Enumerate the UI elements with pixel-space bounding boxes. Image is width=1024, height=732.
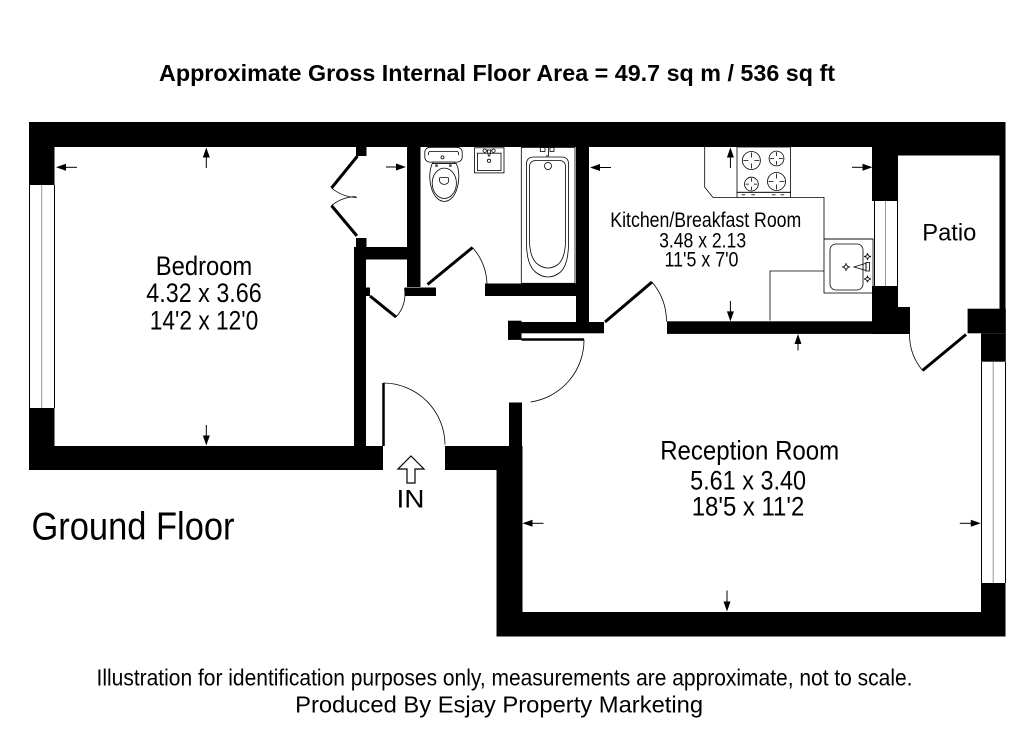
svg-text:Bedroom: Bedroom [156, 251, 253, 281]
svg-text:IN: IN [397, 486, 425, 514]
svg-text:Approximate Gross Internal Flo: Approximate Gross Internal Floor Area = … [159, 60, 835, 86]
svg-text:11'5 x 7'0: 11'5 x 7'0 [665, 248, 739, 272]
svg-text:Produced By Esjay Property Mar: Produced By Esjay Property Marketing [295, 692, 703, 718]
svg-text:Illustration for identificatio: Illustration for identification purposes… [97, 665, 913, 691]
svg-text:4.32 x 3.66: 4.32 x 3.66 [146, 278, 262, 308]
svg-text:18'5 x 11'2: 18'5 x 11'2 [692, 492, 805, 522]
svg-text:Ground Floor: Ground Floor [32, 506, 235, 549]
svg-text:Patio: Patio [922, 219, 976, 246]
svg-text:14'2 x 12'0: 14'2 x 12'0 [150, 306, 259, 336]
svg-text:Reception Room: Reception Room [660, 435, 839, 465]
